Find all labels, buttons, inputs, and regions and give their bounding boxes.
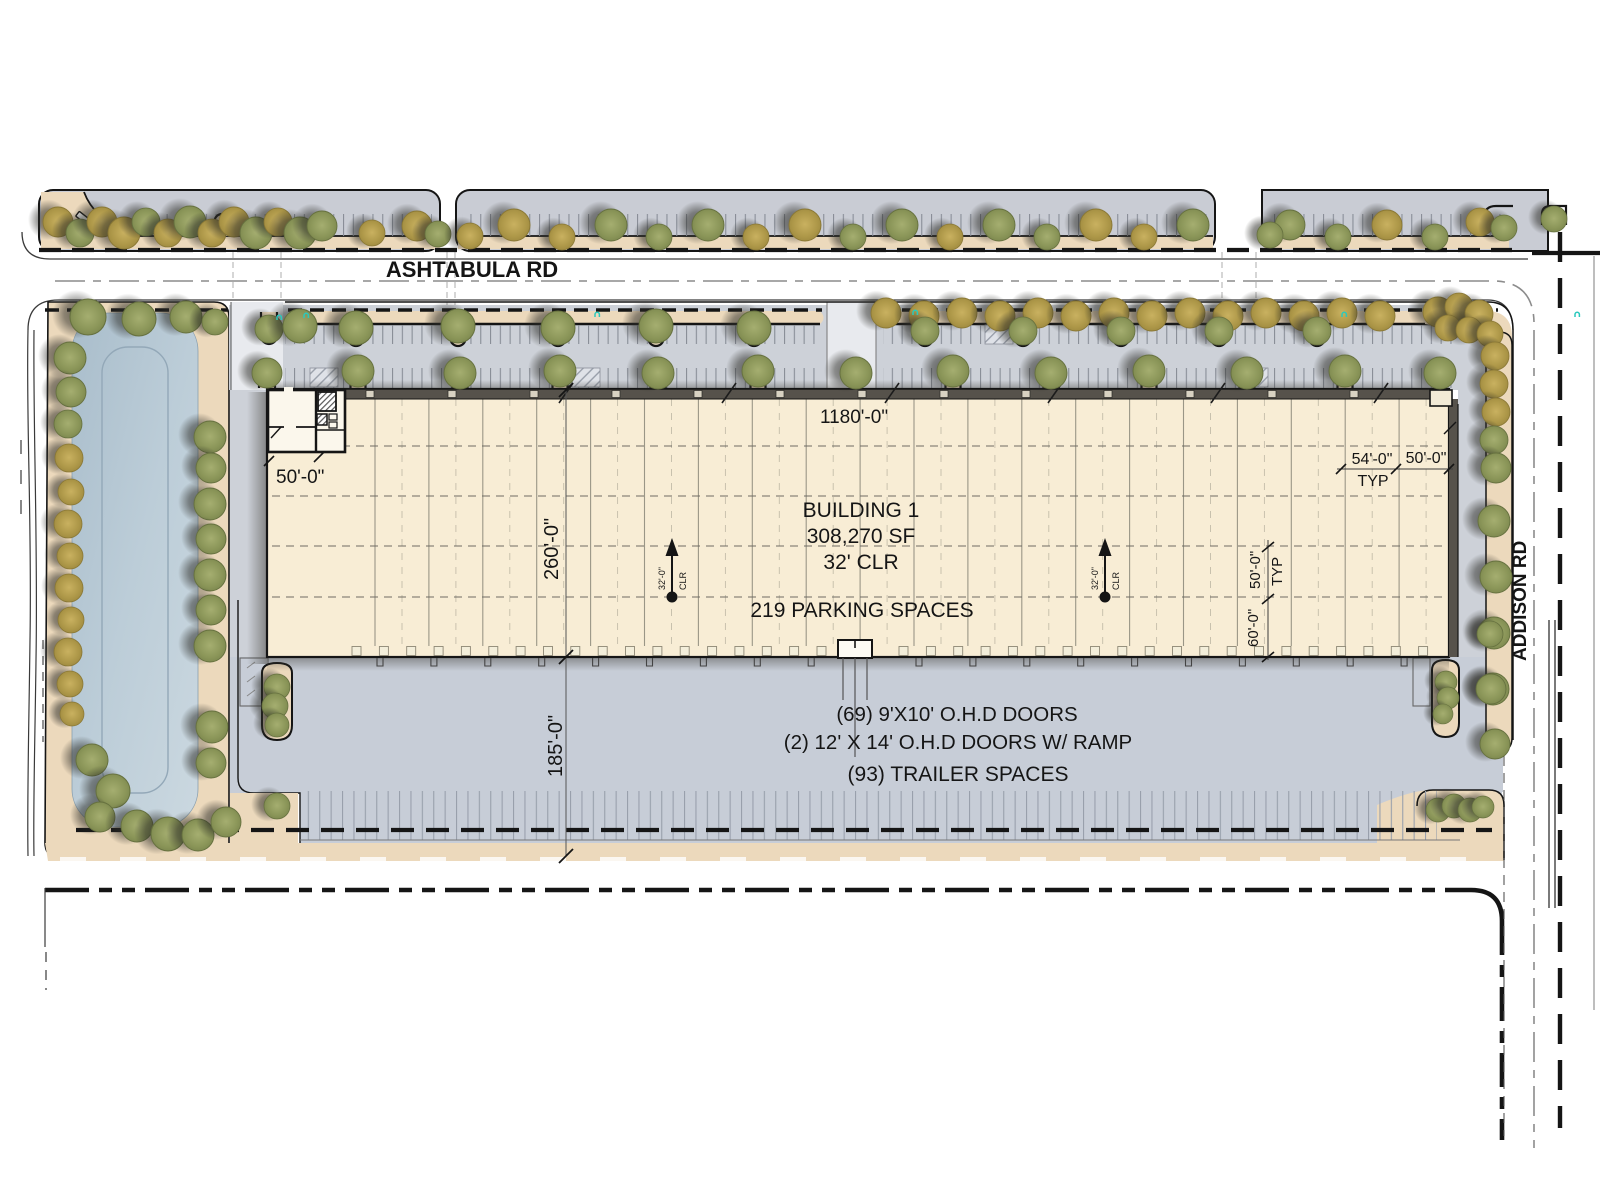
svg-text:50'-0": 50'-0" xyxy=(1406,450,1447,467)
svg-text:TYP: TYP xyxy=(1269,557,1286,586)
svg-text:219 PARKING SPACES: 219 PARKING SPACES xyxy=(750,599,973,622)
svg-text:CLR: CLR xyxy=(1111,571,1121,590)
svg-text:50'-0": 50'-0" xyxy=(276,467,324,488)
svg-text:308,270 SF: 308,270 SF xyxy=(807,525,916,548)
svg-text:(2) 12' X 14' O.H.D DOORS W/ R: (2) 12' X 14' O.H.D DOORS W/ RAMP xyxy=(784,731,1132,754)
svg-text:BUILDING 1: BUILDING 1 xyxy=(803,499,920,522)
svg-text:TYP: TYP xyxy=(1357,473,1388,490)
svg-text:60'-0": 60'-0" xyxy=(1245,609,1262,647)
svg-text:260'-0": 260'-0" xyxy=(541,518,563,580)
svg-text:32'-0": 32'-0" xyxy=(1090,567,1100,590)
svg-text:32' CLR: 32' CLR xyxy=(823,551,898,574)
svg-text:54'-0": 54'-0" xyxy=(1352,451,1393,468)
svg-text:(69) 9'X10' O.H.D DOORS: (69) 9'X10' O.H.D DOORS xyxy=(836,703,1077,726)
svg-text:1180'-0": 1180'-0" xyxy=(820,407,888,428)
svg-text:185'-0": 185'-0" xyxy=(545,715,567,777)
svg-text:50'-0": 50'-0" xyxy=(1247,551,1264,589)
svg-text:32'-0": 32'-0" xyxy=(657,567,667,590)
svg-text:(93) TRAILER SPACES: (93) TRAILER SPACES xyxy=(848,763,1069,786)
svg-text:ASHTABULA RD: ASHTABULA RD xyxy=(386,257,558,282)
svg-text:CLR: CLR xyxy=(678,571,688,590)
svg-text:ADDISON RD: ADDISON RD xyxy=(1510,541,1531,661)
